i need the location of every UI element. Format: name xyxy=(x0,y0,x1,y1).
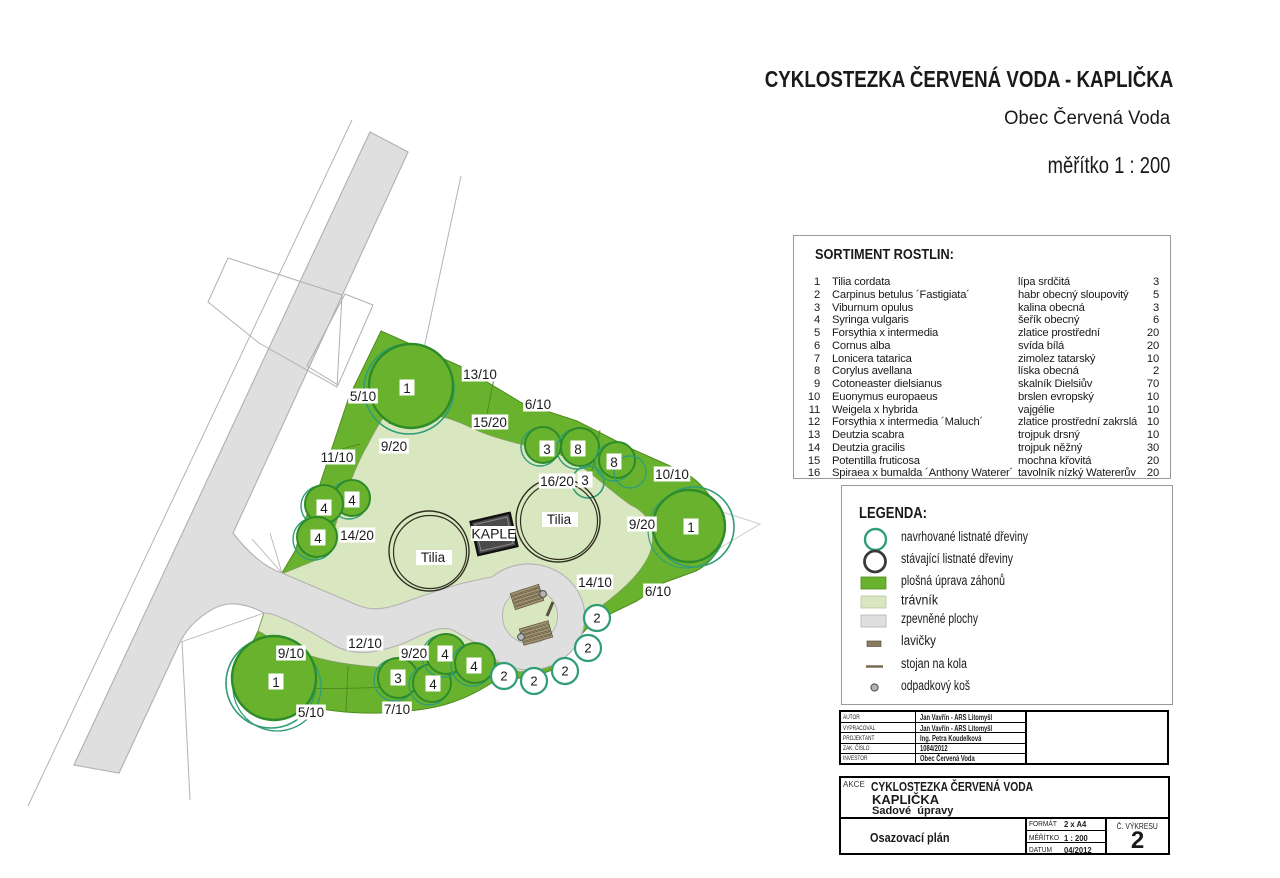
svg-text:10/10: 10/10 xyxy=(655,467,689,482)
svg-text:odpadkový koš: odpadkový koš xyxy=(901,678,970,693)
svg-text:3: 3 xyxy=(581,473,589,488)
svg-text:9/20: 9/20 xyxy=(629,517,655,532)
svg-text:Tilia: Tilia xyxy=(421,550,446,565)
svg-text:zpevněné plochy: zpevněné plochy xyxy=(901,611,978,626)
svg-text:1: 1 xyxy=(272,675,280,690)
svg-text:lavičky: lavičky xyxy=(901,633,936,648)
svg-text:8: 8 xyxy=(610,455,618,470)
svg-text:15/20: 15/20 xyxy=(473,415,507,430)
svg-text:Tilia: Tilia xyxy=(547,512,572,527)
svg-text:5/10: 5/10 xyxy=(350,389,376,404)
svg-text:2: 2 xyxy=(593,611,600,626)
svg-text:4: 4 xyxy=(320,501,328,516)
svg-text:KAPLE: KAPLE xyxy=(471,526,516,542)
svg-text:3: 3 xyxy=(543,442,551,457)
svg-text:4: 4 xyxy=(441,647,449,662)
svg-text:9/10: 9/10 xyxy=(278,646,304,661)
svg-text:14/20: 14/20 xyxy=(340,528,374,543)
svg-text:9/20: 9/20 xyxy=(381,439,407,454)
svg-text:2: 2 xyxy=(530,674,537,689)
svg-text:9/20: 9/20 xyxy=(401,646,427,661)
svg-text:4: 4 xyxy=(470,659,478,674)
svg-text:1: 1 xyxy=(687,520,695,535)
svg-text:8: 8 xyxy=(574,442,582,457)
svg-text:6/10: 6/10 xyxy=(645,584,671,599)
svg-text:plošná úprava záhonů: plošná úprava záhonů xyxy=(901,573,1005,588)
svg-text:12/10: 12/10 xyxy=(348,636,382,651)
svg-text:5/10: 5/10 xyxy=(298,705,324,720)
svg-text:4: 4 xyxy=(314,531,322,546)
svg-text:11/10: 11/10 xyxy=(321,450,354,465)
svg-text:6/10: 6/10 xyxy=(525,397,551,412)
svg-text:14/10: 14/10 xyxy=(578,575,612,590)
svg-text:stojan na kola: stojan na kola xyxy=(901,656,967,671)
svg-text:1: 1 xyxy=(403,381,411,396)
svg-text:2: 2 xyxy=(584,641,591,656)
svg-text:4: 4 xyxy=(429,677,437,692)
svg-text:2: 2 xyxy=(500,669,507,684)
svg-text:4: 4 xyxy=(348,493,356,508)
svg-text:16/20: 16/20 xyxy=(540,474,574,489)
svg-text:13/10: 13/10 xyxy=(463,367,497,382)
svg-text:2: 2 xyxy=(561,664,568,679)
svg-text:stávající listnaté dřeviny: stávající listnaté dřeviny xyxy=(901,551,1013,566)
svg-text:3: 3 xyxy=(394,671,402,686)
svg-text:trávník: trávník xyxy=(901,593,938,608)
svg-text:navrhované listnaté dřeviny: navrhované listnaté dřeviny xyxy=(901,529,1028,544)
svg-text:7/10: 7/10 xyxy=(384,702,410,717)
